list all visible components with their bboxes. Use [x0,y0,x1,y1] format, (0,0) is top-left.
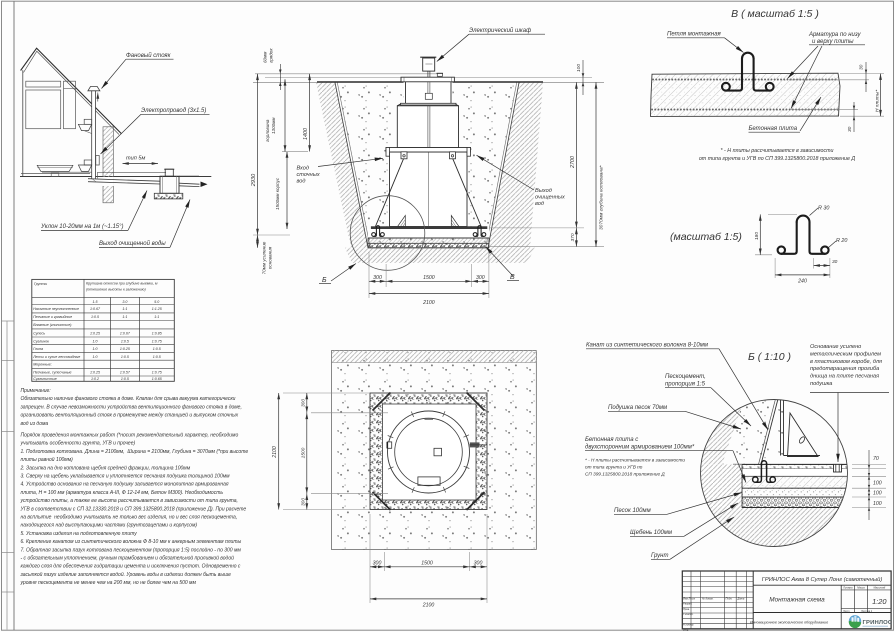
svg-text:1:0.5: 1:0.5 [153,355,161,359]
svg-text:1500: 1500 [300,447,306,458]
svg-text:2100: 2100 [422,603,435,609]
svg-text:1:1.25: 1:1.25 [152,307,162,311]
svg-text:1:0.25: 1:0.25 [120,347,130,351]
svg-text:Бетонная плита: Бетонная плита [749,126,798,132]
svg-text:Моренные:: Моренные: [33,363,52,367]
svg-text:Суглинок: Суглинок [33,339,49,343]
svg-text:засыпкой пазух изделие заполня: засыпкой пазух изделие заполняется водой… [20,571,232,578]
svg-text:Пров.: Пров. [683,607,690,611]
svg-text:1:0.75: 1:0.75 [152,371,162,375]
svg-text:Арматура по низу: Арматура по низу [808,32,861,38]
svg-text:тип 5м: тип 5м [126,156,146,162]
svg-text:Б ( 1:10 ): Б ( 1:10 ) [748,351,791,363]
svg-text:(масштаб 1:5): (масштаб 1:5) [670,231,742,243]
svg-text:очищенных: очищенных [535,195,565,201]
svg-text:1:0.67: 1:0.67 [90,307,101,311]
svg-text:1500: 1500 [421,561,433,567]
svg-text:предотвращения прогиба: предотвращения прогиба [810,366,879,372]
svg-text:1:0: 1:0 [93,347,98,351]
svg-text:устройство плиты, а также ее в: устройство плиты, а также ее высота расс… [20,497,238,504]
svg-text:днища на плите песчаная: днища на плите песчаная [810,374,879,380]
svg-text:1:0.5: 1:0.5 [153,347,161,351]
svg-text:1500: 1500 [423,275,435,281]
svg-text:Утв.: Утв. [683,628,689,632]
svg-text:1:0.25: 1:0.25 [90,371,100,375]
svg-text:Подп.: Подп. [726,596,733,600]
svg-text:* - Н плиты рассчитывается в з: * - Н плиты рассчитывается в зависимости [585,458,685,463]
svg-text:Песчаные, супесчаные: Песчаные, супесчаные [33,371,71,375]
svg-text:запрещен. В случае невозможнос: запрещен. В случае невозможности устройс… [20,403,242,410]
svg-text:60мм: 60мм [263,51,268,63]
svg-text:Лист: Лист [842,610,849,613]
svg-text:1. Подготовка котлована. Длина: 1. Подготовка котлована. Длина = 2100мм,… [21,449,249,455]
svg-text:7. Обратная засыпка пазух котл: 7. Обратная засыпка пазух котлована песк… [21,546,242,553]
svg-text:вод из дома: вод из дома [21,421,49,427]
svg-text:Песчаные и гравийные: Песчаные и гравийные [33,315,72,319]
svg-text:100: 100 [873,491,882,497]
svg-text:3. Сверху на щебень укладывает: 3. Сверху на щебень укладывается и уплот… [21,473,231,480]
svg-text:1:0.67: 1:0.67 [120,331,131,335]
svg-text:30: 30 [832,259,838,265]
svg-text:учитывать особенности грунта,: учитывать особенности грунта, УГВ и проч… [20,441,136,447]
svg-text:Выход: Выход [535,188,552,194]
svg-text:Уклон 10-20мм на 1м (~1.15°): Уклон 10-20мм на 1м (~1.15°) [40,224,124,230]
svg-text:Фановый стояк: Фановый стояк [126,52,172,59]
svg-text:30: 30 [859,64,865,70]
svg-text:Песок 100мм: Песок 100мм [614,508,651,514]
svg-text:Б: Б [322,277,327,284]
svg-text:в пластиковом коробе, для: в пластиковом коробе, для [810,359,882,365]
svg-text:300: 300 [300,498,306,506]
svg-text:Масштаб: Масштаб [873,587,885,590]
svg-text:100: 100 [873,481,882,487]
svg-text:Подушка песок 70мм: Подушка песок 70мм [608,405,667,411]
svg-text:5. Установка изделия на подгот: 5. Установка изделия на подготовленную п… [21,531,138,537]
svg-text:1:0.75: 1:0.75 [152,339,162,343]
svg-text:100: 100 [576,64,582,72]
svg-text:находящегося над выступающими: находящегося над выступающими частями (г… [21,523,198,529]
svg-text:ГРИНЛОС Аква 8 Супер Лонг (сам: ГРИНЛОС Аква 8 Супер Лонг (самотечный) [762,576,883,583]
svg-text:1:0.57: 1:0.57 [120,371,131,375]
svg-text:1:0.5: 1:0.5 [121,339,129,343]
svg-text:1:20: 1:20 [872,597,887,606]
svg-text:Электрический шкаф: Электрический шкаф [469,27,531,34]
svg-text:пропорция 1:5: пропорция 1:5 [665,382,706,388]
svg-text:2930: 2930 [251,173,257,187]
svg-text:1:0.5: 1:0.5 [121,355,129,359]
svg-text:каждого слоя для обеспечения г: каждого слоя для обеспечения гидратации … [21,564,241,570]
svg-text:6. Крепление канатом из синтет: 6. Крепление канатом из синтетического в… [21,539,242,545]
svg-text:30: 30 [847,126,853,132]
svg-text:на всплытие необходимо учитыв: на всплытие необходимо учитывать не толь… [21,515,238,521]
svg-text:плита, Н = 100 мм (арматура кл: плита, Н = 100 мм (арматура класса А-III… [21,490,224,496]
svg-text:300: 300 [373,561,382,567]
svg-text:Суглинистые: Суглинистые [33,377,57,381]
svg-text:Грунт: Грунт [651,553,668,559]
svg-text:240: 240 [797,279,807,285]
svg-text:от типа грунта и УГВ по: от типа грунта и УГВ по [585,465,643,470]
svg-text:Бетонная плита с: Бетонная плита с [585,437,638,443]
svg-text:Примечание:: Примечание: [21,388,52,394]
svg-text:№ докум.: № докум. [702,596,714,600]
svg-text:Щебень 100мм: Щебень 100мм [630,530,672,536]
svg-text:5.0: 5.0 [154,300,159,304]
svg-text:Пескоцемент,: Пескоцемент, [665,374,706,380]
svg-text:Разраб.: Разраб. [683,602,693,606]
svg-text:металлическим профилем: металлическим профилем [810,351,881,357]
svg-text:1:0.65: 1:0.65 [152,377,162,381]
svg-text:В ( масштаб 1:5 ): В ( масштаб 1:5 ) [731,8,819,20]
svg-text:1:1: 1:1 [122,315,127,319]
svg-text:Вход: Вход [297,166,309,172]
svg-text:Н.контр.: Н.контр. [683,623,694,627]
svg-text:1500мм корпус: 1500мм корпус [275,177,280,210]
svg-text:уровня пескоцемента не менее ч: уровня пескоцемента не менее чем на 200 … [20,580,197,586]
svg-text:1:0.2: 1:0.2 [91,377,99,381]
svg-text:2700: 2700 [570,156,576,169]
svg-text:плиты равной 100мм): плиты равной 100мм) [21,456,74,463]
svg-text:Лессы и сухие лессовидные: Лессы и сухие лессовидные [32,355,80,359]
svg-text:1300мм: 1300мм [271,117,276,134]
svg-text:Изм.Лист: Изм.Лист [683,596,696,600]
svg-text:300: 300 [476,275,485,281]
svg-text:* - Н плиты рассчитывается в з: * - Н плиты рассчитывается в зависимости [721,148,834,154]
svg-text:Выход очищенной воды: Выход очищенной воды [99,240,166,247]
svg-text:Порядок проведения монтажных р: Порядок проведения монтажных работ (*нос… [21,432,239,439]
svg-text:Канат из синтетического волокн: Канат из синтетического волокна 8-10мм [586,343,708,349]
svg-text:Обязательно наличие фанового с: Обязательно наличие фанового стояка в до… [21,396,236,402]
svg-text:1:0: 1:0 [93,339,98,343]
svg-text:Дата: Дата [737,596,745,600]
svg-text:основания: основания [268,246,273,269]
svg-text:Масса: Масса [857,587,865,590]
svg-text:Грунты: Грунты [34,282,47,286]
svg-text:100: 100 [873,501,882,507]
svg-text:1:0: 1:0 [93,355,98,359]
svg-text:Глина: Глина [33,347,43,351]
svg-text:370: 370 [570,233,576,241]
svg-text:2100: 2100 [272,446,278,459]
svg-text:вод: вод [535,201,544,207]
svg-text:Монтажная схема: Монтажная схема [769,597,825,604]
svg-text:вод: вод [297,179,306,185]
svg-text:1:0.25: 1:0.25 [90,331,100,335]
svg-text:Инновационное экологическое об: Инновационное экологическое оборудование [750,621,828,625]
svg-text:1:0.5: 1:0.5 [121,377,129,381]
svg-text:от типа грунта и УГВ по СП 399: от типа грунта и УГВ по СП 399.1325800.2… [699,156,856,162]
svg-text:1:0.85: 1:0.85 [152,331,162,335]
svg-text:Т.контр.: Т.контр. [683,612,694,616]
svg-text:Литера: Литера [842,587,853,590]
svg-text:R 20: R 20 [836,238,847,244]
svg-text:организовать вентиляционный ст: организовать вентиляционный стояк в пром… [21,412,239,419]
svg-text:(отношение высоты к заложению): (отношение высоты к заложению) [86,288,146,292]
svg-text:1:0.5: 1:0.5 [91,315,99,319]
svg-text:3.0: 3.0 [122,300,127,304]
svg-text:1:1: 1:1 [154,315,159,319]
svg-text:Основание усилено: Основание усилено [810,344,861,350]
svg-text:2100: 2100 [422,300,435,306]
svg-text:ГРИНЛОС: ГРИНЛОС [863,620,893,626]
svg-text:300: 300 [373,275,382,281]
svg-text:грядок: грядок [269,48,274,63]
svg-text:300: 300 [300,399,306,407]
svg-text:горловина: горловина [265,119,270,142]
svg-text:70: 70 [873,456,879,462]
svg-text:Петля монтажная: Петля монтажная [667,32,722,38]
svg-text:подушка: подушка [810,381,832,387]
svg-text:Супесь: Супесь [33,331,45,335]
svg-text:Крутизна откосов при глубине в: Крутизна откосов при глубине выемки, м [86,281,158,285]
svg-text:сточных: сточных [297,172,320,178]
svg-text:Электропровод (3х1.5): Электропровод (3х1.5) [141,108,206,114]
svg-text:УГВ в соответствии с СП 32.133: УГВ в соответствии с СП 32.13330.2018 и … [21,506,247,512]
svg-text:1400: 1400 [303,128,309,140]
svg-text:Насыпные неуплотненные: Насыпные неуплотненные [33,307,79,311]
svg-text:2. Засыпка на дно котлована ще: 2. Засыпка на дно котлована щебня средне… [20,464,191,471]
svg-text:двухсторонним армированием 100: двухсторонним армированием 100мм* [585,445,695,451]
svg-text:- с обязательным уплотнением,: - с обязательным уплотнением, ручным тра… [21,555,235,562]
svg-text:Н плиты*: Н плиты* [875,90,881,112]
svg-text:и верху плиты: и верху плиты [812,39,854,45]
svg-text:180: 180 [754,232,760,240]
svg-text:1.5: 1.5 [93,300,98,304]
svg-text:R 30: R 30 [818,206,829,212]
svg-text:70мм усиление: 70мм усиление [262,241,267,274]
svg-text:СП 399.1325800.2018 приложение: СП 399.1325800.2018 приложение Д [585,472,665,477]
svg-text:4. Устройство основания на пес: 4. Устройство основания на песчаную поду… [21,481,229,488]
svg-text:1:1: 1:1 [122,307,127,311]
svg-text:300: 300 [474,561,483,567]
svg-text:Листов 1: Листов 1 [860,610,873,613]
svg-text:3070мм глубина котлована*: 3070мм глубина котлована* [599,165,605,230]
svg-text:Влажные (глинистые):: Влажные (глинистые): [33,323,72,327]
